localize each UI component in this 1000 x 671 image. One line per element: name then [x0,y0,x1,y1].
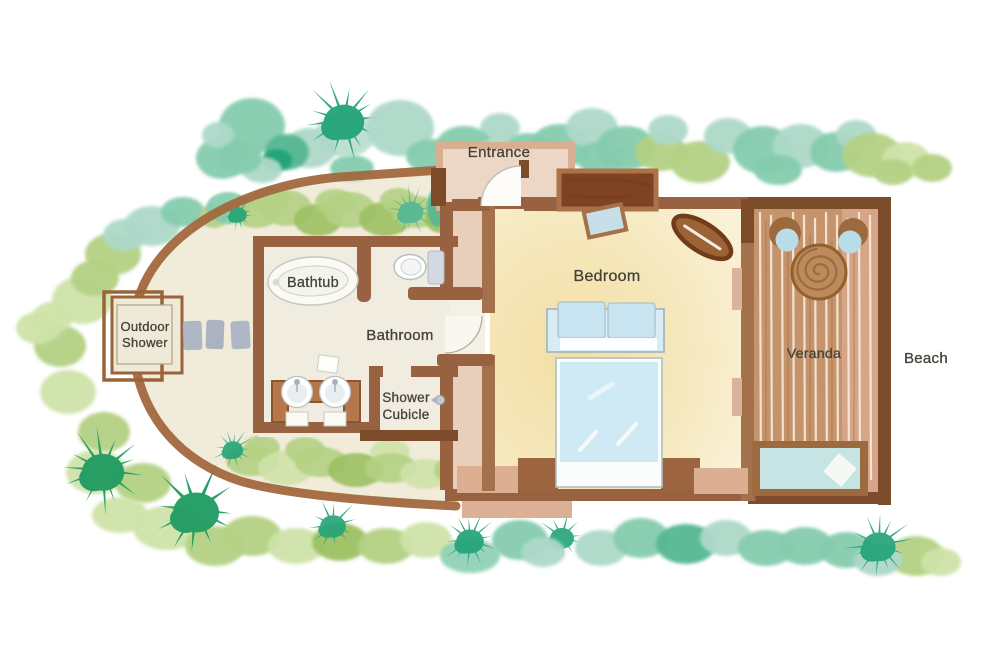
svg-text:Bedroom: Bedroom [573,268,640,285]
svg-text:Veranda: Veranda [787,345,841,361]
svg-text:Outdoor: Outdoor [120,319,169,334]
svg-text:Beach: Beach [904,350,948,367]
svg-text:Cubicle: Cubicle [382,407,429,422]
svg-text:Shower: Shower [122,335,168,350]
svg-text:Entrance: Entrance [468,144,530,161]
svg-text:Bathroom: Bathroom [366,327,433,344]
svg-text:Shower: Shower [382,390,430,405]
svg-text:Bathtub: Bathtub [287,275,339,291]
